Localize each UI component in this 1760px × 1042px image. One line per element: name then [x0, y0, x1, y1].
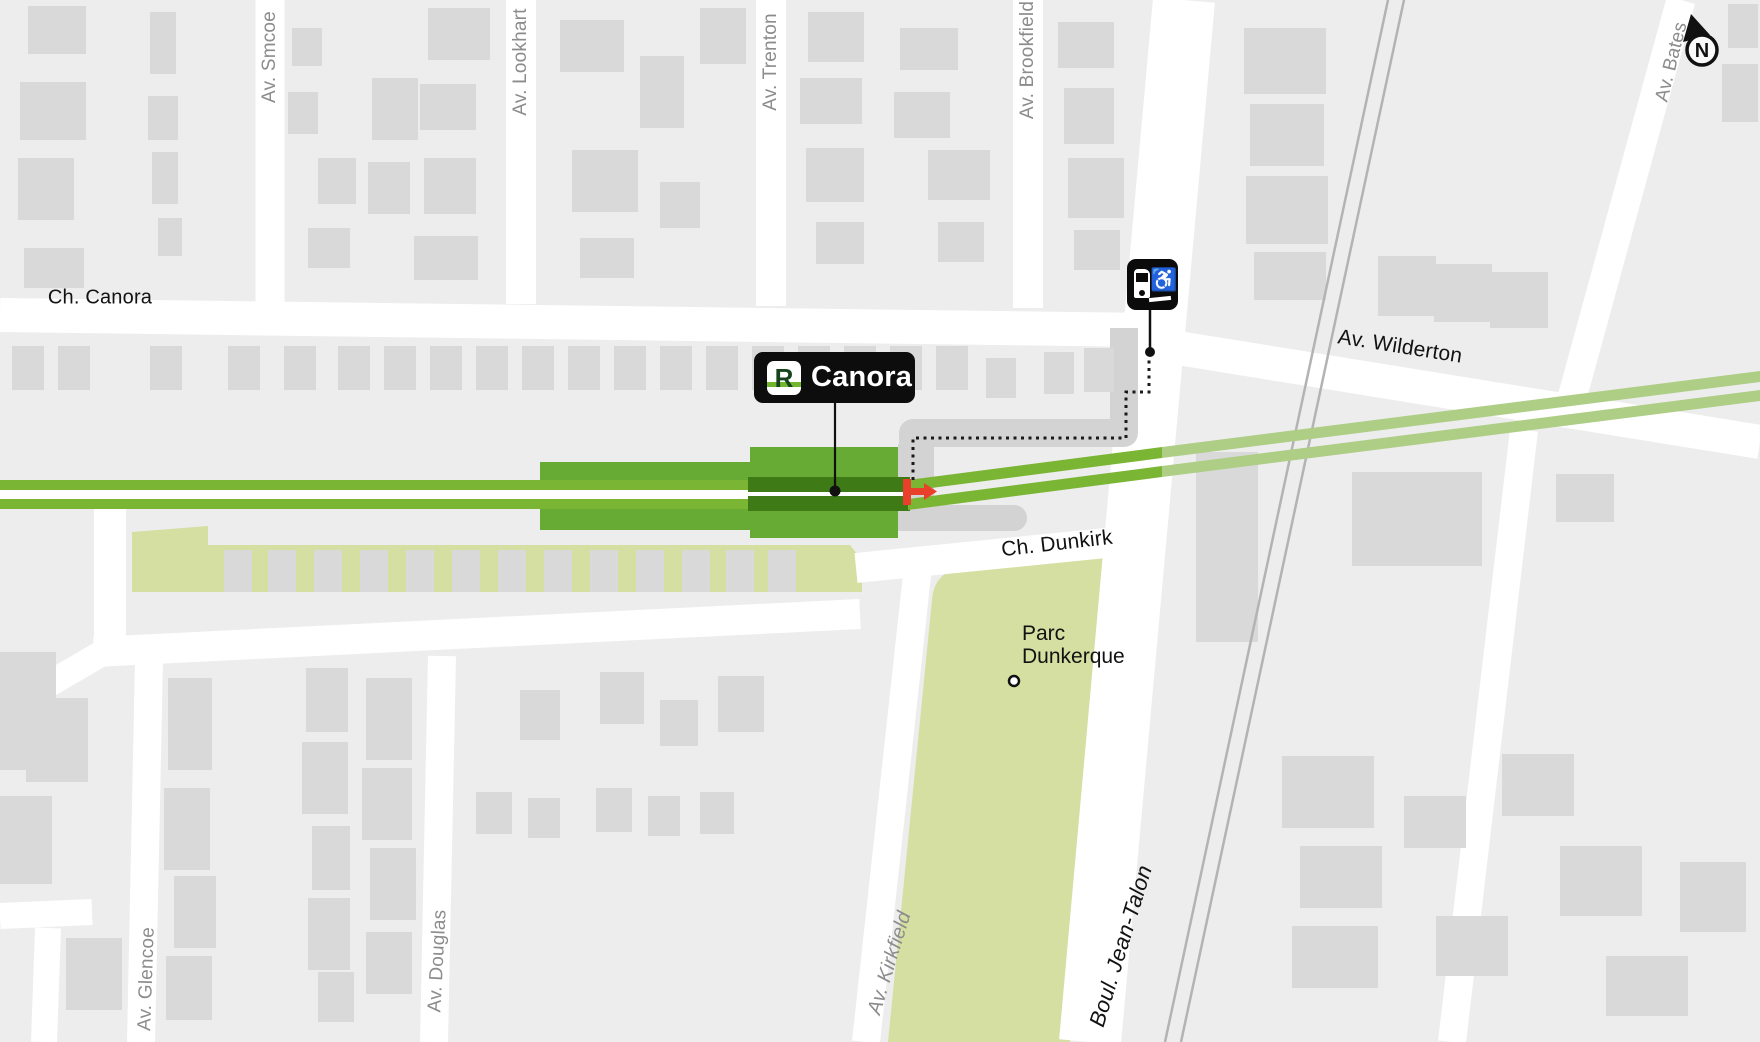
label-av-trenton: Av. Trenton [760, 13, 782, 111]
park-name-line1: Parc [1022, 622, 1125, 645]
bus-accessible-icon: ♿ [1127, 259, 1178, 310]
map-canvas: N [0, 0, 1760, 1042]
street-bottom-left-stub-h [0, 912, 92, 916]
rem-logo-letter: R [775, 365, 794, 391]
canora-station-label: R Canora [754, 352, 915, 403]
bus-stop-marker-dot [1145, 347, 1155, 357]
label-av-lookhart: Av. Lookhart [510, 8, 532, 115]
label-av-smcoe: Av. Smcoe [259, 11, 281, 103]
park-name-line2: Dunkerque [1022, 645, 1125, 668]
street-ch-canora [0, 315, 1150, 330]
compass-letter: N [1695, 40, 1709, 62]
label-ch-canora: Ch. Canora [48, 287, 152, 310]
park-marker-circle [1009, 676, 1019, 686]
station-marker-dot [830, 486, 841, 497]
bus-wheel-icon [1139, 290, 1145, 296]
street-lower-horizontal [94, 614, 860, 652]
wheelchair-icon: ♿ [1150, 267, 1177, 293]
label-parc-dunkerque: Parc Dunkerque [1022, 622, 1125, 668]
bus-window-icon [1136, 273, 1148, 282]
rem-track-west-lower [0, 499, 752, 509]
label-av-brookfield: Av. Brookfield [1017, 1, 1039, 119]
rem-track-station-upper [748, 477, 910, 492]
rem-track-station-lower [748, 496, 910, 511]
ramp-icon [1149, 296, 1171, 302]
rem-logo-icon: R [767, 361, 801, 395]
station-name: Canora [811, 361, 912, 394]
station-area-map: N Ch. Canora Av. Smcoe Av. Lookhart Av. … [0, 0, 1760, 1042]
street-bottom-left-stub-v [44, 928, 48, 1042]
rem-track-west-upper [0, 480, 752, 490]
parks-layer [132, 526, 1128, 1042]
label-av-glencoe: Av. Glencoe [134, 927, 160, 1032]
